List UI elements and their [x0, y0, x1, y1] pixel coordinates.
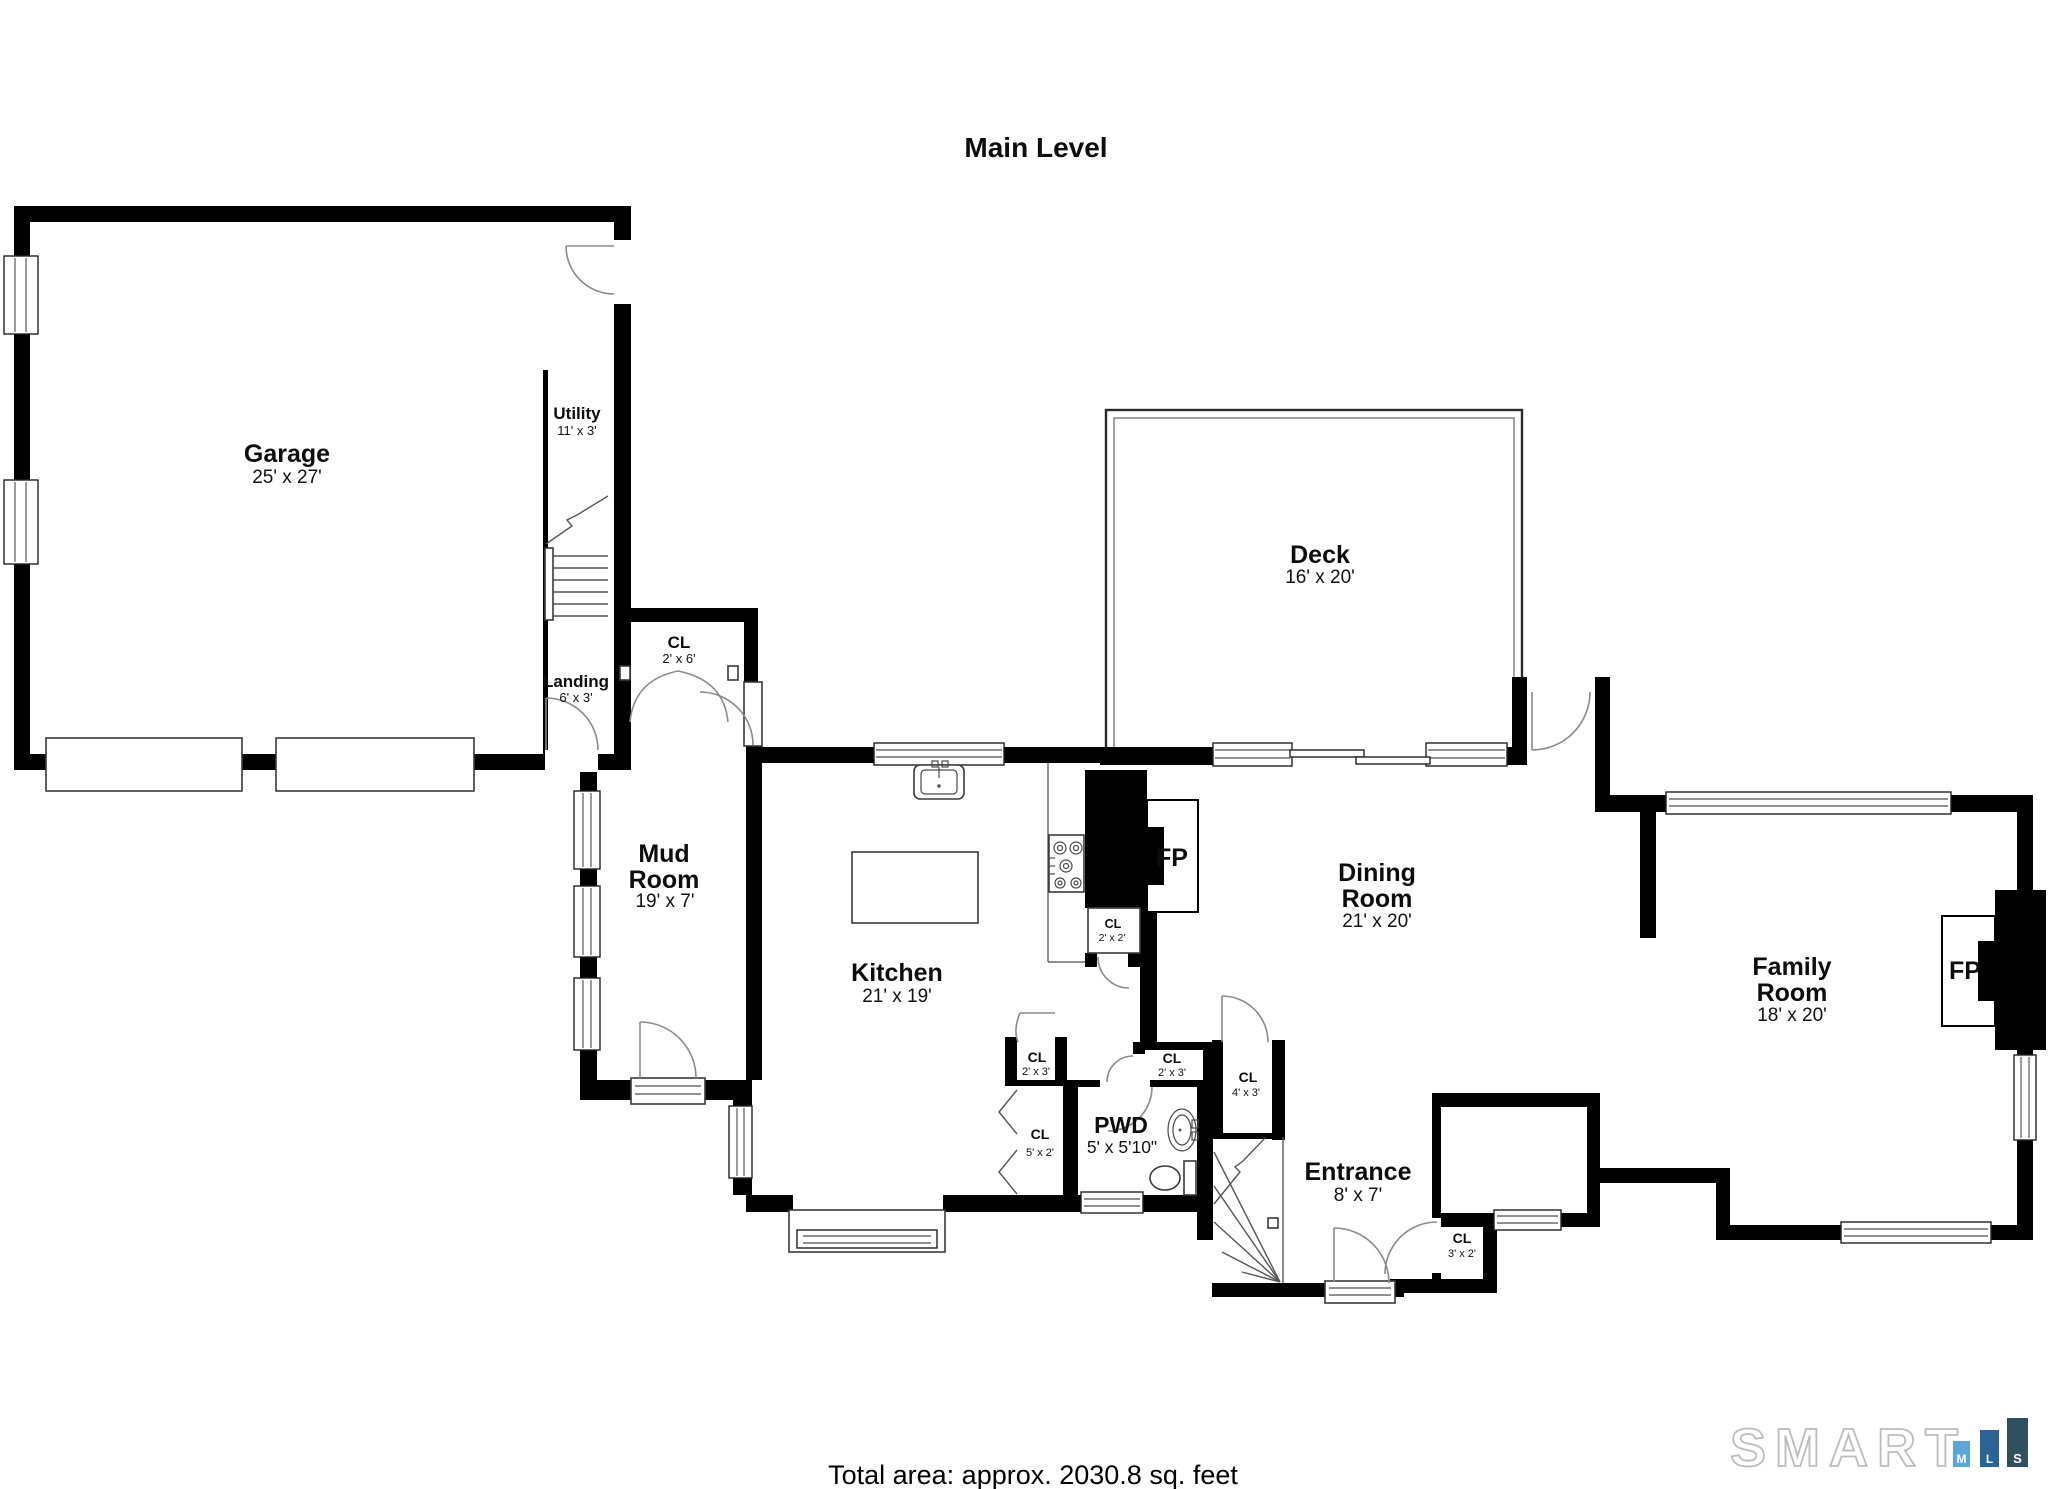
room-label-cl-3x2: CL — [1453, 1230, 1472, 1246]
front-door — [1334, 1228, 1389, 1283]
hall-window — [1494, 1210, 1561, 1230]
front-door-threshold — [1325, 1281, 1395, 1303]
room-label-cl-5x2: CL — [1031, 1126, 1050, 1142]
cl-4x3-door — [1222, 996, 1268, 1042]
entrance-stairs-icon — [1214, 1137, 1283, 1283]
room-dims-garage: 25' x 27' — [252, 467, 322, 488]
logo-word: SMART — [1730, 1418, 1967, 1478]
room-dims-cl-4x3: 4' x 3' — [1232, 1087, 1260, 1099]
cl-2x2-door — [1098, 957, 1129, 988]
garage-door — [276, 738, 474, 791]
garage-door — [46, 738, 242, 791]
room-dims-cl-2x3a: 2' x 3' — [1022, 1066, 1050, 1078]
logo-letter-m: M — [1957, 1452, 1967, 1466]
room-dims-landing: 6' x 3' — [559, 690, 592, 705]
deck-side-door — [1532, 692, 1590, 750]
bay-window — [789, 1210, 945, 1252]
floor-plan-canvas: Main Level Garage 25' x 27' Utility 11' … — [0, 0, 2048, 1489]
garage-window — [4, 256, 38, 334]
total-area-text: Total area: approx. 2030.8 sq. feet — [828, 1460, 1238, 1489]
cl-2x6-doors — [630, 671, 728, 722]
cl-3x2-door — [1385, 1222, 1437, 1274]
room-label-fp-kitchen: FP — [1156, 844, 1188, 872]
room-dims-cl-5x2: 5' x 2' — [1026, 1147, 1054, 1159]
mudroom-window — [574, 791, 600, 869]
kitchen-island — [852, 852, 978, 923]
cl-2x3a-door — [1016, 1013, 1055, 1042]
family-window — [2014, 1055, 2036, 1140]
room-label-utility: Utility — [553, 404, 601, 423]
room-label-landing: Landing — [543, 672, 609, 691]
mudroom-window — [574, 978, 600, 1050]
room-label-entrance: Entrance — [1305, 1158, 1412, 1186]
room-dims-cl-2x6: 2' x 6' — [662, 651, 695, 666]
room-label-kitchen: Kitchen — [851, 959, 943, 987]
room-dims-mud: 19' x 7' — [635, 891, 694, 912]
family-window — [1841, 1222, 1991, 1243]
stove-icon — [1049, 835, 1084, 892]
room-label-mud-2: Room — [629, 866, 700, 894]
room-dims-family: 18' x 20' — [1757, 1005, 1827, 1026]
page-title: Main Level — [964, 132, 1107, 163]
smartmls-logo: SMART M L S — [1730, 1418, 2028, 1478]
kitchen-sink-icon — [914, 761, 964, 799]
mudroom-window — [574, 886, 600, 957]
landing-door — [546, 698, 598, 750]
room-label-fp-family: FP — [1949, 957, 1981, 985]
room-label-mud-1: Mud — [638, 840, 689, 868]
room-label-garage: Garage — [244, 440, 330, 468]
pwd-toilet-icon — [1150, 1161, 1196, 1195]
room-label-family-2: Room — [1757, 979, 1828, 1007]
kitchen-window — [874, 743, 1004, 765]
room-dims-utility: 11' x 3' — [557, 423, 596, 438]
room-dims-deck: 16' x 20' — [1285, 567, 1355, 588]
family-window — [1666, 792, 1951, 814]
room-label-family-1: Family — [1752, 953, 1831, 981]
room-label-cl-2x2: CL — [1105, 917, 1122, 931]
room-dims-cl-2x3b: 2' x 3' — [1158, 1067, 1186, 1079]
room-dims-dining: 21' x 20' — [1342, 911, 1412, 932]
pwd-window — [1081, 1192, 1143, 1213]
room-label-dining-2: Room — [1342, 885, 1413, 913]
dining-window — [1213, 743, 1292, 766]
utility-stairs-icon — [545, 496, 608, 620]
room-dims-pwd: 5' x 5'10" — [1087, 1137, 1157, 1157]
room-label-cl-2x3b: CL — [1163, 1050, 1182, 1066]
cl-5x2-bifold — [999, 1090, 1017, 1194]
logo-letter-s: S — [2013, 1451, 2022, 1466]
pwd-sink-icon — [1168, 1109, 1198, 1151]
room-dims-cl-3x2: 3' x 2' — [1448, 1248, 1476, 1260]
mudroom-exterior-door — [640, 1022, 696, 1078]
room-label-dining-1: Dining — [1338, 859, 1416, 887]
garage-window — [4, 480, 38, 564]
kitchen-side-window — [729, 1106, 752, 1178]
mudroom-door-threshold — [631, 1078, 705, 1104]
room-dims-entrance: 8' x 7' — [1334, 1185, 1382, 1206]
room-dims-kitchen: 21' x 19' — [862, 986, 932, 1007]
room-label-cl-2x3a: CL — [1028, 1049, 1047, 1065]
dining-window — [1426, 743, 1507, 766]
room-label-cl-4x3: CL — [1239, 1069, 1258, 1085]
logo-letter-l: L — [1986, 1452, 1993, 1466]
room-label-pwd: PWD — [1094, 1112, 1148, 1138]
cl-2x3b-door — [1107, 1056, 1133, 1082]
garage-entry-door — [566, 246, 614, 294]
room-dims-cl-2x2: 2' x 2' — [1099, 932, 1126, 944]
room-label-cl-2x6: CL — [668, 633, 691, 652]
room-label-deck: Deck — [1290, 541, 1350, 569]
